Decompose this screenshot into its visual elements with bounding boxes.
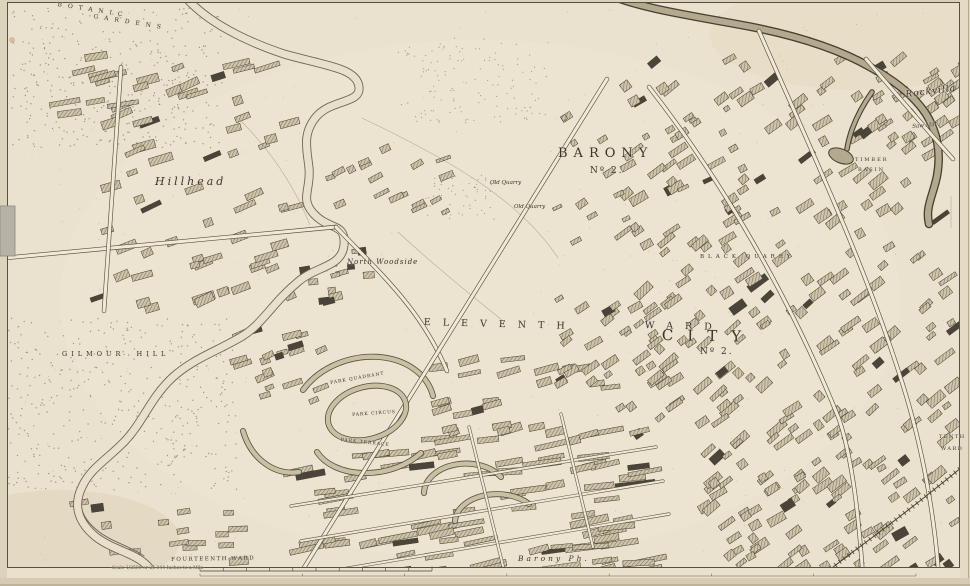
canal-basin-spur: [847, 92, 872, 149]
map-canvas: [0, 0, 970, 586]
edge-tab: [0, 206, 15, 256]
map-content: [0, 0, 970, 586]
map-sheet: BOTANIC GARDENS Hillhead North Woodside …: [0, 0, 970, 586]
